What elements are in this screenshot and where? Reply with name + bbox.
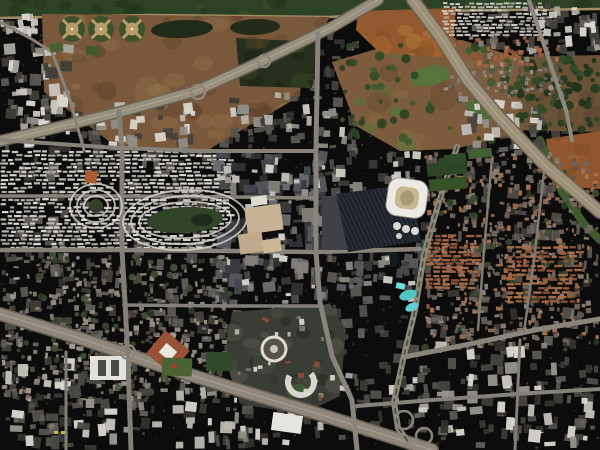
- mall-building-b: [238, 231, 265, 254]
- road-south-h: [124, 305, 318, 306]
- office-h-slot-a: [98, 360, 106, 376]
- mall-building-a: [244, 204, 283, 235]
- tank-b: [402, 225, 410, 233]
- white-building-bottom: [271, 412, 303, 434]
- park-field-a: [49, 42, 63, 53]
- tank-a: [393, 222, 401, 230]
- office-h-slot-b: [111, 360, 119, 376]
- tank-d: [396, 233, 402, 239]
- satellite-imagery: [0, 0, 600, 450]
- park-red-ride: [172, 364, 177, 369]
- practice-field-b: [429, 176, 468, 191]
- park-lawn-b: [206, 352, 232, 371]
- stadium: [385, 176, 430, 219]
- office-h-building: [90, 356, 126, 380]
- yellow-marker-b: [61, 431, 65, 434]
- mall-building-c: [262, 238, 282, 253]
- park-lawn-a: [162, 357, 193, 376]
- satellite-map-view[interactable]: [0, 0, 600, 450]
- orange-condo: [84, 170, 97, 183]
- tank-c: [411, 227, 419, 235]
- round-ride-hub: [270, 345, 278, 353]
- waterpark-pool-c: [395, 282, 405, 290]
- mobile-park-rings-west: [70, 184, 122, 228]
- golf-course: [332, 40, 536, 158]
- park-field-b: [86, 46, 100, 56]
- yellow-marker-a: [54, 431, 58, 434]
- road-mid-h: [0, 196, 316, 198]
- baseball-fields: [59, 16, 145, 42]
